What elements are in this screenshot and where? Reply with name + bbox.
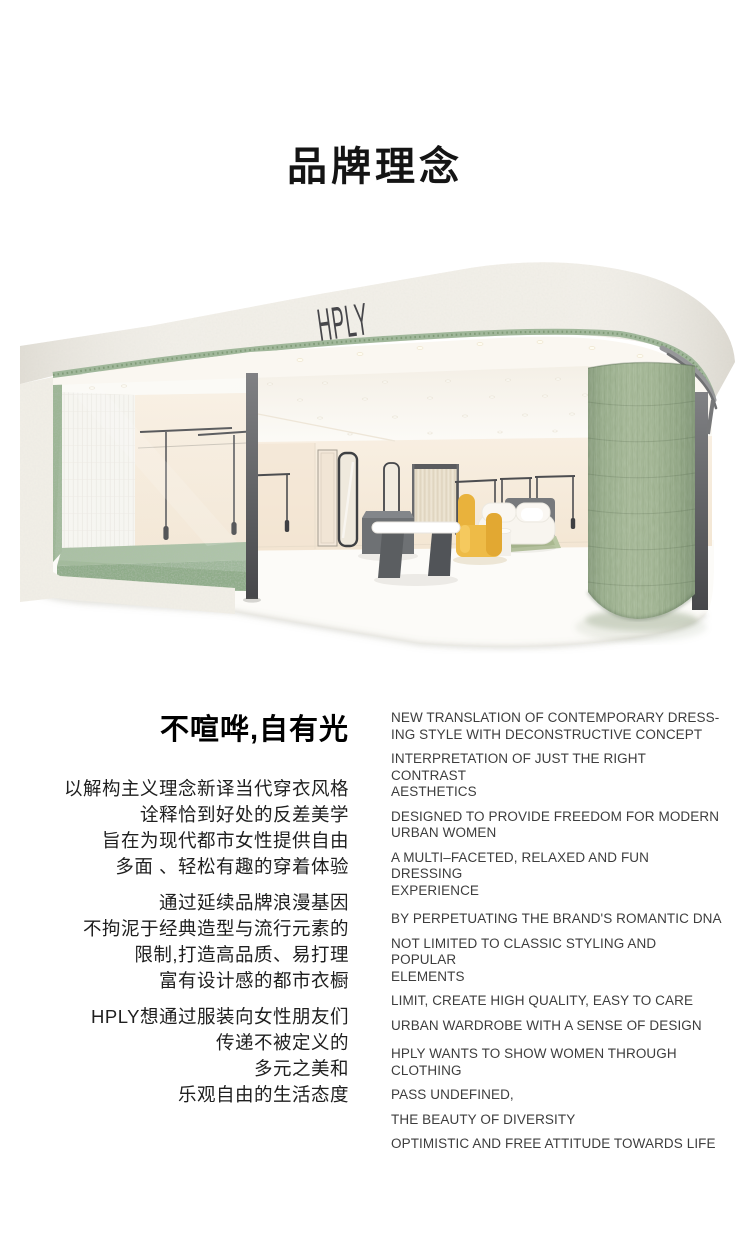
en-line: NEW TRANSLATION OF CONTEMPORARY DRESS- I… (391, 710, 722, 743)
en-line: LIMIT, CREATE HIGH QUALITY, EASY TO CARE (391, 993, 722, 1010)
zh-line: 限制,打造高品质、易打理 (20, 942, 349, 968)
en-line: INTERPRETATION OF JUST THE RIGHT CONTRAS… (391, 751, 722, 801)
storefront-illustration: HPLY (0, 242, 750, 654)
brand-philosophy-page: 品牌理念 (0, 0, 750, 1246)
zh-paragraph-1: 以解构主义理念新译当代穿衣风格诠释恰到好处的反差美学旨在为现代都市女性提供自由多… (20, 776, 349, 880)
zh-line: 诠释恰到好处的反差美学 (20, 802, 349, 828)
green-column (575, 362, 707, 642)
brand-logo-group: HPLY (314, 294, 372, 352)
zh-line: 不拘泥于经典造型与流行元素的 (20, 916, 349, 942)
en-paragraph-1: NEW TRANSLATION OF CONTEMPORARY DRESS- I… (391, 710, 722, 899)
zh-paragraph-3: HPLY想通过服装向女性朋友们传递不被定义的多元之美和乐观自由的生活态度 (20, 1004, 349, 1108)
en-paragraph-3: HPLY WANTS TO SHOW WOMEN THROUGH CLOTHIN… (391, 1046, 722, 1153)
zh-paragraph-2: 通过延续品牌浪漫基因不拘泥于经典造型与流行元素的限制,打造高品质、易打理富有设计… (20, 890, 349, 994)
en-line: NOT LIMITED TO CLASSIC STYLING AND POPUL… (391, 936, 722, 986)
en-line: BY PERPETUATING THE BRAND'S ROMANTIC DNA (391, 911, 722, 928)
fitting-room-curtain (412, 464, 459, 527)
philosophy-section: 不喧哗,自有光 以解构主义理念新译当代穿衣风格诠释恰到好处的反差美学旨在为现代都… (0, 710, 750, 1165)
storefront-render: HPLY (0, 242, 750, 654)
en-line: THE BEAUTY OF DIVERSITY (391, 1112, 722, 1129)
en-line: URBAN WARDROBE WITH A SENSE OF DESIGN (391, 1018, 722, 1035)
philosophy-heading-zh: 不喧哗,自有光 (20, 710, 349, 750)
page-title: 品牌理念 (0, 0, 750, 194)
zh-line: 富有设计感的都市衣橱 (20, 968, 349, 994)
zh-line: 多元之美和 (20, 1056, 349, 1082)
tall-mirror (339, 453, 357, 546)
philosophy-chinese-column: 不喧哗,自有光 以解构主义理念新译当代穿衣风格诠释恰到好处的反差美学旨在为现代都… (20, 710, 349, 1118)
en-line: A MULTI–FACETED, RELAXED AND FUN DRESSIN… (391, 850, 722, 900)
en-line: DESIGNED TO PROVIDE FREEDOM FOR MODERN U… (391, 809, 722, 842)
zh-line: 以解构主义理念新译当代穿衣风格 (20, 776, 349, 802)
en-paragraph-2: BY PERPETUATING THE BRAND'S ROMANTIC DNA… (391, 911, 722, 1034)
zh-line: 传递不被定义的 (20, 1030, 349, 1056)
display-window (53, 368, 256, 591)
zh-line: HPLY想通过服装向女性朋友们 (20, 1004, 349, 1030)
philosophy-english-column: NEW TRANSLATION OF CONTEMPORARY DRESS- I… (391, 710, 722, 1165)
interior-door (318, 450, 337, 546)
zh-line: 旨在为现代都市女性提供自由 (20, 828, 349, 854)
en-line: PASS UNDEFINED, (391, 1087, 722, 1104)
brand-logo: HPLY (314, 294, 372, 352)
en-line: OPTIMISTIC AND FREE ATTITUDE TOWARDS LIF… (391, 1136, 722, 1153)
zh-line: 乐观自由的生活态度 (20, 1082, 349, 1108)
zh-line: 通过延续品牌浪漫基因 (20, 890, 349, 916)
en-line: HPLY WANTS TO SHOW WOMEN THROUGH CLOTHIN… (391, 1046, 722, 1079)
zh-line: 多面 、轻松有趣的穿着体验 (20, 854, 349, 880)
